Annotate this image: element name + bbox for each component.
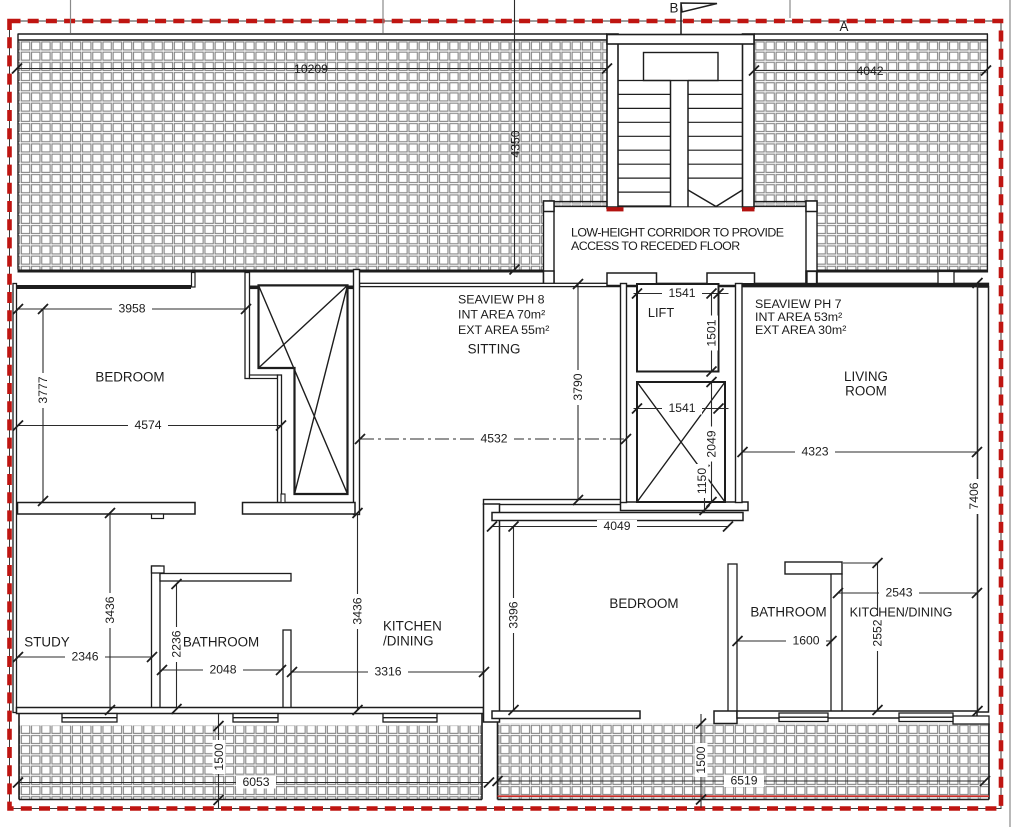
svg-text:A: A xyxy=(840,19,849,34)
svg-text:1500: 1500 xyxy=(212,743,226,770)
svg-text:4049: 4049 xyxy=(603,519,630,533)
svg-text:BATHROOM: BATHROOM xyxy=(750,605,826,620)
svg-text:1541: 1541 xyxy=(668,401,695,415)
svg-text:3436: 3436 xyxy=(103,596,117,623)
svg-text:7406: 7406 xyxy=(967,482,981,509)
svg-text:LIVING: LIVING xyxy=(844,369,888,384)
svg-text:10209: 10209 xyxy=(294,62,328,76)
svg-text:LOW-HEIGHT CORRIDOR TO PROVIDE: LOW-HEIGHT CORRIDOR TO PROVIDE xyxy=(571,226,784,240)
svg-text:BEDROOM: BEDROOM xyxy=(609,596,678,611)
svg-text:3316: 3316 xyxy=(374,665,401,679)
svg-text:6519: 6519 xyxy=(730,774,757,788)
svg-text:INT AREA 53m²: INT AREA 53m² xyxy=(755,310,842,324)
svg-text:BEDROOM: BEDROOM xyxy=(95,370,164,385)
svg-text:INT AREA 70m²: INT AREA 70m² xyxy=(458,308,545,322)
svg-text:2346: 2346 xyxy=(71,650,98,664)
svg-text:SITTING: SITTING xyxy=(468,342,521,357)
svg-text:3958: 3958 xyxy=(118,302,145,316)
svg-text:/DINING: /DINING xyxy=(383,634,434,649)
svg-text:1501: 1501 xyxy=(705,319,719,346)
svg-text:4042: 4042 xyxy=(856,64,883,78)
svg-text:3777: 3777 xyxy=(36,376,50,403)
svg-text:1541: 1541 xyxy=(668,286,695,300)
svg-text:4574: 4574 xyxy=(134,418,161,432)
svg-text:KITCHEN: KITCHEN xyxy=(383,619,442,634)
svg-text:2552: 2552 xyxy=(871,619,885,646)
svg-text:SEAVIEW PH 8: SEAVIEW PH 8 xyxy=(458,293,545,307)
svg-text:BATHROOM: BATHROOM xyxy=(183,635,259,650)
svg-text:2236: 2236 xyxy=(170,630,184,657)
svg-text:2049: 2049 xyxy=(705,430,719,457)
svg-text:ACCESS TO RECEDED FLOOR: ACCESS TO RECEDED FLOOR xyxy=(571,239,740,253)
svg-text:6053: 6053 xyxy=(242,775,269,789)
svg-text:3436: 3436 xyxy=(351,597,365,624)
svg-text:1150: 1150 xyxy=(695,468,709,494)
svg-text:2048: 2048 xyxy=(209,663,236,677)
svg-text:3396: 3396 xyxy=(507,601,521,628)
svg-text:EXT AREA 55m²: EXT AREA 55m² xyxy=(458,323,549,337)
svg-text:4532: 4532 xyxy=(480,432,507,446)
svg-text:SEAVIEW PH 7: SEAVIEW PH 7 xyxy=(755,297,842,311)
svg-text:4350: 4350 xyxy=(509,130,523,157)
svg-text:1600: 1600 xyxy=(792,634,819,648)
svg-text:EXT AREA 30m²: EXT AREA 30m² xyxy=(755,323,846,337)
svg-text:STUDY: STUDY xyxy=(24,635,69,650)
svg-text:KITCHEN/DINING: KITCHEN/DINING xyxy=(850,606,953,620)
svg-text:2543: 2543 xyxy=(885,586,912,600)
svg-text:4323: 4323 xyxy=(801,445,828,459)
svg-text:1500: 1500 xyxy=(694,746,708,773)
svg-text:LIFT: LIFT xyxy=(648,305,674,320)
svg-text:ROOM: ROOM xyxy=(845,384,887,399)
svg-text:3790: 3790 xyxy=(571,373,585,400)
svg-text:B: B xyxy=(670,1,679,16)
